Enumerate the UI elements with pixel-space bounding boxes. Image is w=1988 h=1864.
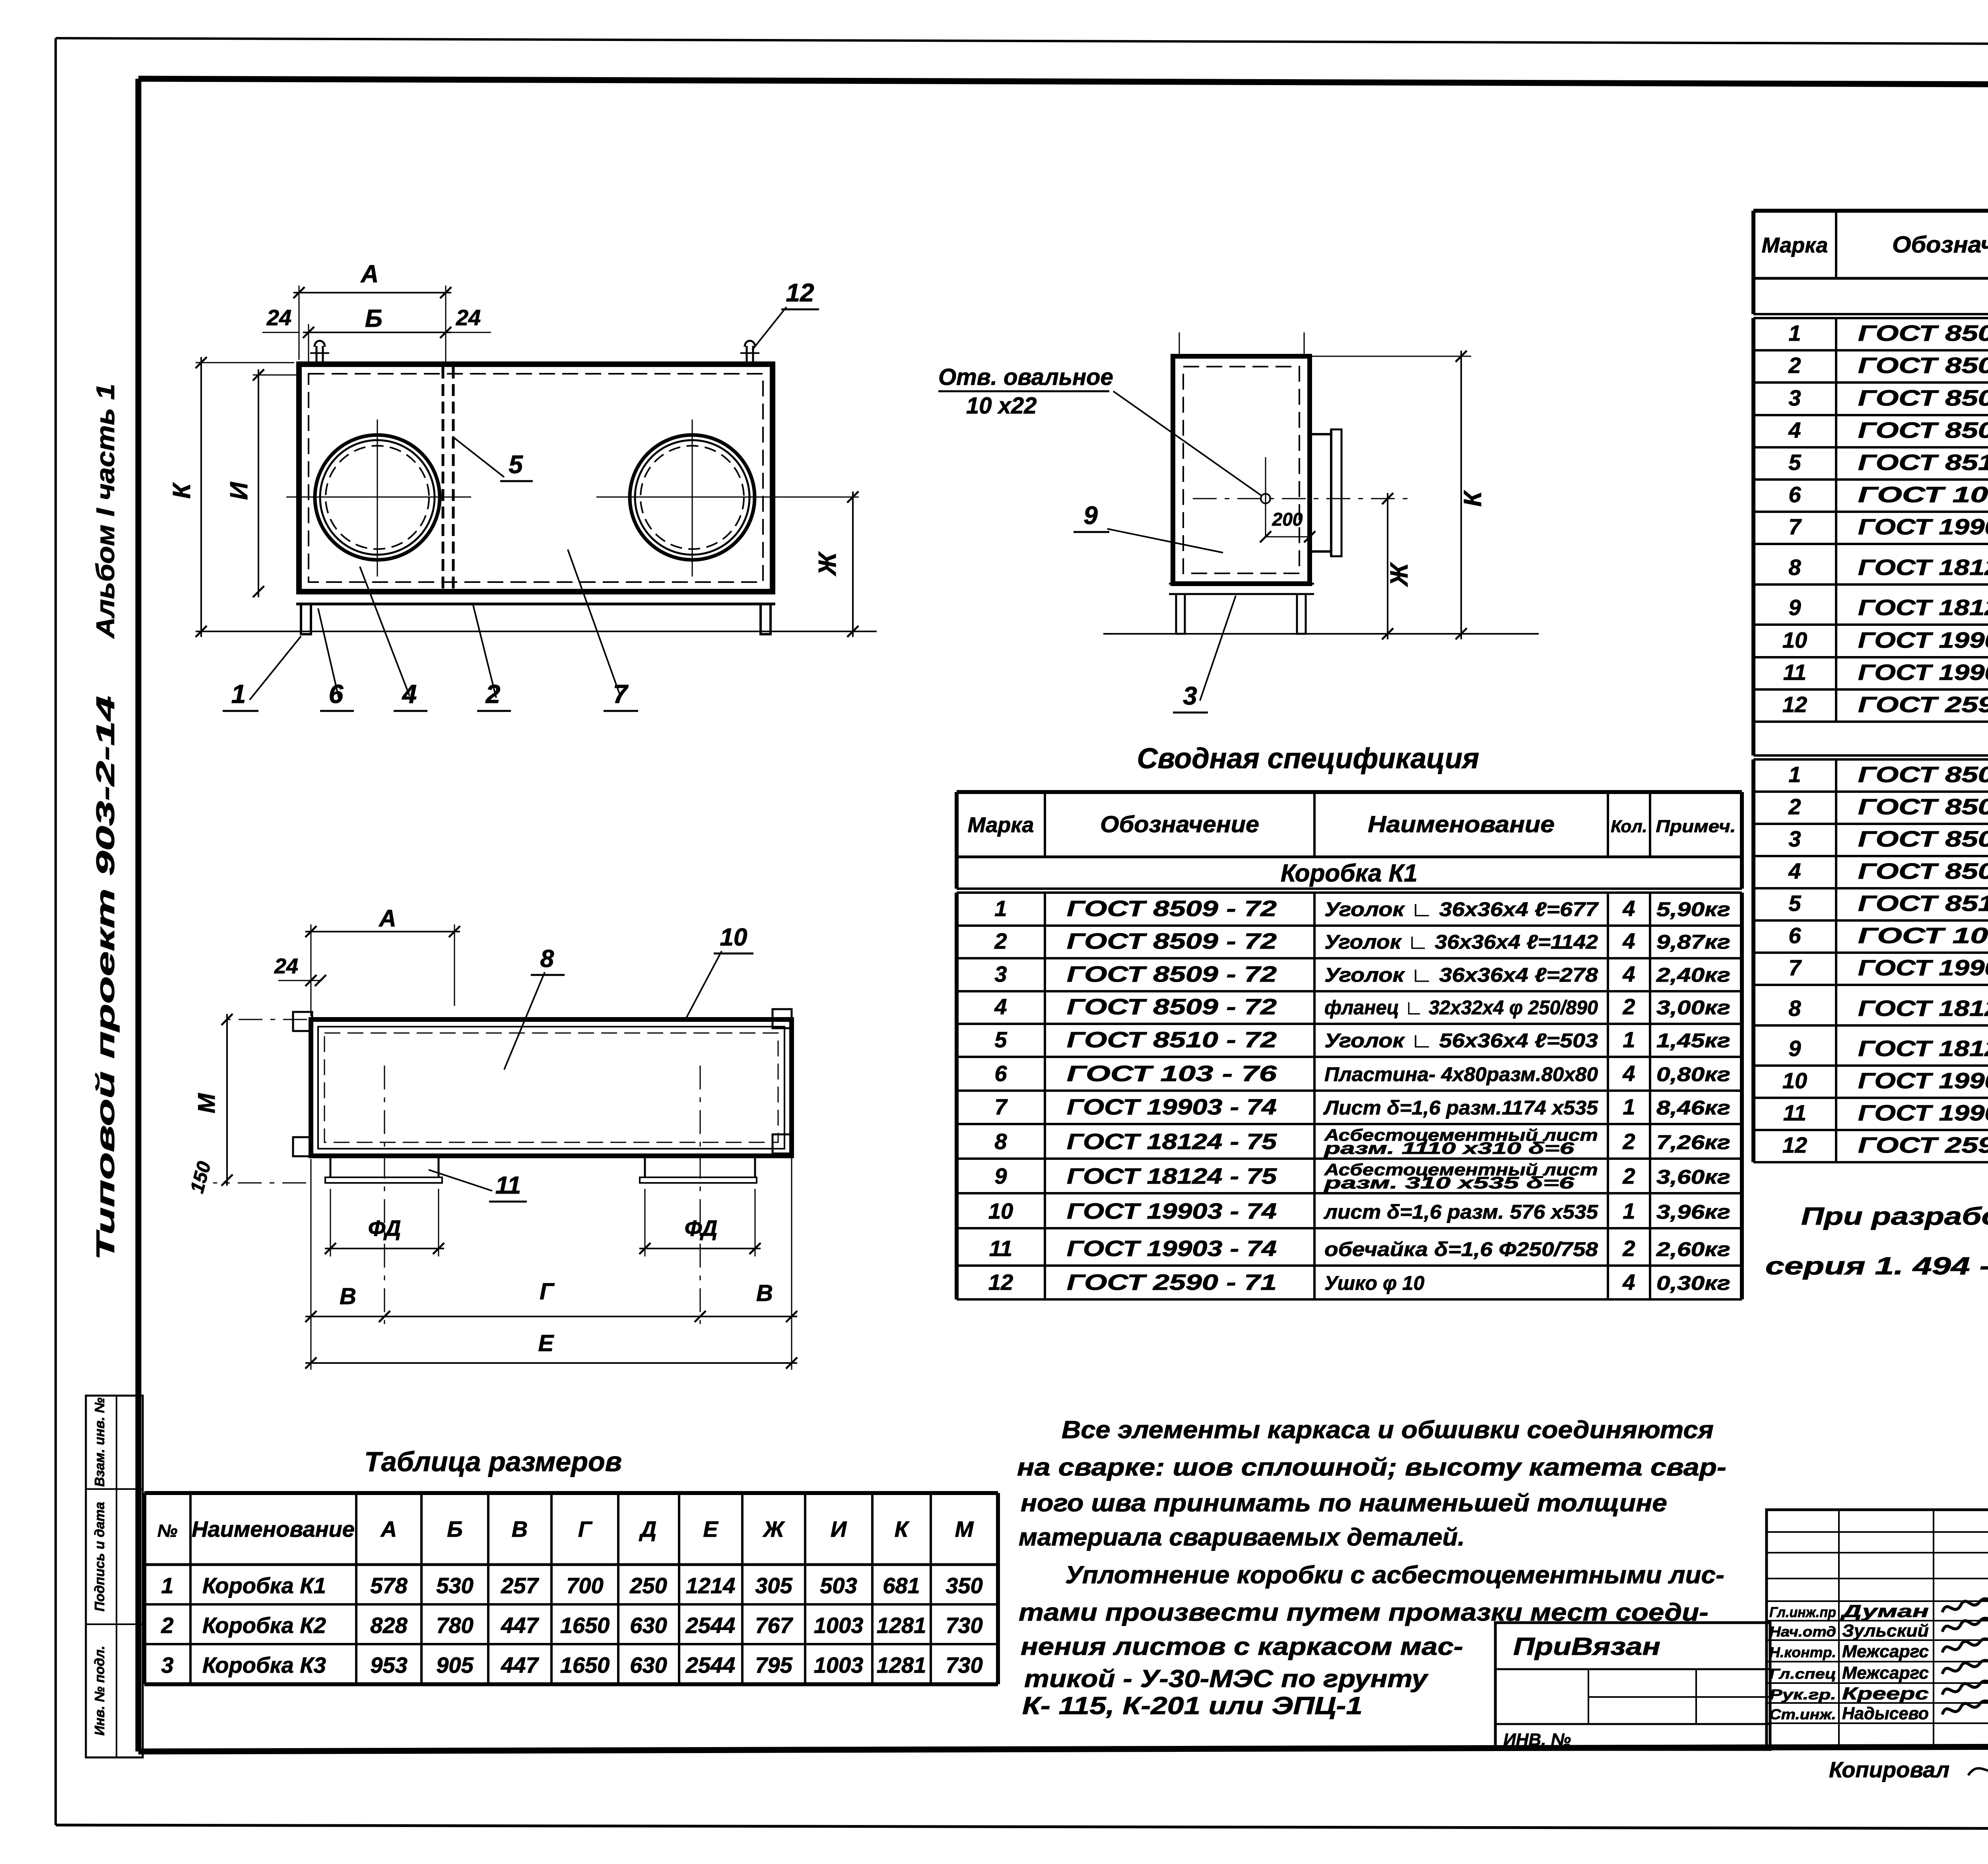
svg-text:6: 6 <box>1788 923 1801 948</box>
svg-text:Уголок ∟ 56х36х4 ℓ=503: Уголок ∟ 56х36х4 ℓ=503 <box>1324 1029 1598 1052</box>
svg-text:ГОСТ 103 - 76: ГОСТ 103 - 76 <box>1067 1061 1277 1086</box>
svg-text:ФД: ФД <box>368 1215 401 1241</box>
svg-text:Гл.инж.пр: Гл.инж.пр <box>1769 1604 1836 1620</box>
svg-text:503: 503 <box>820 1573 857 1598</box>
svg-text:578: 578 <box>370 1573 408 1598</box>
svg-text:905: 905 <box>436 1652 474 1678</box>
svg-text:1: 1 <box>994 896 1007 921</box>
svg-text:24: 24 <box>274 954 298 978</box>
svg-text:Кол.: Кол. <box>1611 817 1647 836</box>
svg-text:серия 1. 494 -26. выпуск 1: серия 1. 494 -26. выпуск 1 <box>1765 1252 1988 1280</box>
svg-text:1214: 1214 <box>686 1573 736 1598</box>
svg-text:828: 828 <box>370 1613 408 1638</box>
svg-text:ГОСТ 18124 - 75: ГОСТ 18124 - 75 <box>1858 555 1988 580</box>
svg-text:Альбом I часть 1: Альбом I часть 1 <box>91 384 120 639</box>
svg-text:4: 4 <box>1622 1061 1635 1086</box>
svg-text:Подпись и дата: Подпись и дата <box>92 1502 107 1612</box>
svg-text:К: К <box>1459 490 1487 507</box>
svg-text:А: А <box>378 905 396 932</box>
svg-text:И: И <box>225 482 253 500</box>
svg-text:250: 250 <box>629 1573 667 1598</box>
svg-text:ПриВязан: ПриВязан <box>1513 1633 1660 1660</box>
svg-text:3: 3 <box>1183 682 1197 710</box>
svg-text:4: 4 <box>994 994 1007 1019</box>
svg-text:И: И <box>831 1516 847 1542</box>
svg-text:7,26кг: 7,26кг <box>1656 1131 1730 1153</box>
svg-text:9,87кг: 9,87кг <box>1656 931 1730 953</box>
svg-text:200: 200 <box>1272 509 1303 530</box>
svg-text:№: № <box>157 1521 177 1541</box>
svg-text:10: 10 <box>1782 627 1807 652</box>
svg-text:681: 681 <box>883 1573 920 1598</box>
svg-text:лист δ=1,6 разм. 576 х535: лист δ=1,6 разм. 576 х535 <box>1324 1201 1598 1223</box>
svg-text:В: В <box>512 1516 528 1542</box>
svg-text:7: 7 <box>1788 955 1802 980</box>
svg-text:Креерс: Креерс <box>1842 1684 1929 1703</box>
svg-text:3: 3 <box>1788 826 1801 851</box>
svg-text:К- 115, К-201 или ЭПЦ-1: К- 115, К-201 или ЭПЦ-1 <box>1022 1692 1363 1720</box>
svg-text:Уплотнение коробки с асбест: Уплотнение коробки с асбестоцементными л… <box>1065 1561 1724 1589</box>
svg-text:8: 8 <box>1788 555 1801 580</box>
svg-text:2: 2 <box>1622 1163 1635 1188</box>
svg-text:Инв. № подл.: Инв. № подл. <box>92 1646 107 1736</box>
svg-text:24: 24 <box>456 305 481 330</box>
svg-text:ГОСТ 8509 - 72: ГОСТ 8509 - 72 <box>1858 417 1988 443</box>
svg-text:257: 257 <box>501 1573 539 1598</box>
svg-text:4: 4 <box>1622 928 1635 953</box>
svg-text:2544: 2544 <box>685 1652 736 1678</box>
svg-text:Ушко φ 10: Ушко φ 10 <box>1324 1272 1425 1294</box>
svg-text:1,45кг: 1,45кг <box>1656 1029 1730 1052</box>
svg-text:Все элементы каркаса и обш: Все элементы каркаса и обшивки соединяют… <box>1062 1416 1714 1444</box>
svg-text:Зульский: Зульский <box>1842 1621 1929 1641</box>
svg-text:Уголок ∟ 36х36х4 ℓ=677: Уголок ∟ 36х36х4 ℓ=677 <box>1324 898 1599 920</box>
svg-text:Н.контр.: Н.контр. <box>1769 1644 1836 1660</box>
svg-text:Гл.спец: Гл.спец <box>1769 1666 1836 1682</box>
svg-text:2: 2 <box>1788 353 1801 378</box>
svg-text:1281: 1281 <box>877 1613 926 1638</box>
svg-text:12: 12 <box>988 1270 1013 1295</box>
svg-text:ГОСТ 8509 - 72: ГОСТ 8509 - 72 <box>1858 320 1988 346</box>
svg-text:ГОСТ 18124 - 75: ГОСТ 18124 - 75 <box>1858 1036 1988 1061</box>
svg-text:447: 447 <box>501 1652 539 1678</box>
svg-text:Ж: Ж <box>814 551 841 577</box>
svg-text:630: 630 <box>630 1613 667 1638</box>
svg-text:Межсаргс: Межсаргс <box>1842 1642 1929 1661</box>
svg-text:2: 2 <box>1622 1236 1635 1261</box>
svg-text:11: 11 <box>1783 660 1806 685</box>
svg-text:разм. 1110 х310 δ=6: разм. 1110 х310 δ=6 <box>1324 1139 1574 1157</box>
svg-text:7: 7 <box>994 1094 1008 1119</box>
svg-text:1003: 1003 <box>814 1652 864 1678</box>
svg-text:730: 730 <box>945 1613 982 1638</box>
svg-text:ГОСТ 8509 - 72: ГОСТ 8509 - 72 <box>1067 961 1277 986</box>
svg-text:2,40кг: 2,40кг <box>1656 964 1730 986</box>
svg-text:5: 5 <box>1788 450 1801 475</box>
svg-text:8: 8 <box>994 1129 1007 1154</box>
svg-text:ГОСТ 8509 - 72: ГОСТ 8509 - 72 <box>1067 928 1277 953</box>
svg-text:767: 767 <box>755 1613 793 1638</box>
svg-text:ГОСТ 19903 - 74: ГОСТ 19903 - 74 <box>1858 514 1988 539</box>
svg-text:1: 1 <box>1788 762 1801 787</box>
svg-text:10: 10 <box>1782 1068 1807 1093</box>
svg-text:ГОСТ 8509 - 72: ГОСТ 8509 - 72 <box>1858 353 1988 378</box>
svg-text:ГОСТ 19903 - 74: ГОСТ 19903 - 74 <box>1067 1198 1277 1223</box>
svg-text:Копировал: Копировал <box>1829 1757 1949 1782</box>
svg-text:Б: Б <box>447 1516 463 1542</box>
svg-text:2: 2 <box>1622 994 1635 1019</box>
svg-text:1281: 1281 <box>877 1652 926 1678</box>
svg-text:Д: Д <box>639 1516 656 1542</box>
svg-text:447: 447 <box>501 1613 539 1638</box>
svg-text:Ж: Ж <box>1386 562 1413 587</box>
svg-text:1: 1 <box>161 1573 173 1598</box>
svg-text:Межсаргс: Межсаргс <box>1842 1663 1929 1683</box>
svg-text:Отв. овальное: Отв. овальное <box>938 364 1113 390</box>
svg-text:М: М <box>955 1516 974 1542</box>
svg-text:ГОСТ 18124 - 73: ГОСТ 18124 - 73 <box>1858 996 1988 1021</box>
svg-text:Типовой проект 903-2-14: Типовой проект 903-2-14 <box>91 696 120 1260</box>
svg-text:4: 4 <box>1622 1270 1635 1295</box>
svg-text:780: 780 <box>436 1613 473 1638</box>
svg-text:Взам. инв. №: Взам. инв. № <box>92 1398 107 1487</box>
svg-text:В: В <box>756 1280 773 1306</box>
svg-text:3,96кг: 3,96кг <box>1656 1201 1730 1223</box>
svg-text:ГОСТ 19903 - 74: ГОСТ 19903 - 74 <box>1858 1068 1988 1093</box>
svg-text:А: А <box>380 1516 397 1542</box>
svg-text:ГОСТ 8509 - 72: ГОСТ 8509 - 72 <box>1067 994 1277 1019</box>
svg-text:Г: Г <box>578 1516 593 1542</box>
svg-text:350: 350 <box>945 1573 982 1598</box>
svg-text:ГОСТ 2590 - 71: ГОСТ 2590 - 71 <box>1858 1132 1988 1157</box>
svg-text:700: 700 <box>566 1573 603 1598</box>
svg-text:Обозначение: Обозначение <box>1892 232 1988 258</box>
svg-text:Марка: Марка <box>968 813 1034 837</box>
svg-text:Ж: Ж <box>762 1516 785 1542</box>
svg-text:К: К <box>895 1516 910 1542</box>
svg-text:ГОСТ 2590 - 71: ГОСТ 2590 - 71 <box>1858 692 1988 717</box>
svg-text:ГОСТ 8509 - 72: ГОСТ 8509 - 72 <box>1067 896 1277 921</box>
svg-text:1: 1 <box>1623 1198 1635 1223</box>
svg-text:К: К <box>168 482 196 499</box>
svg-text:материала свариваемых детале: материала свариваемых деталей. <box>1019 1524 1465 1551</box>
svg-text:5,90кг: 5,90кг <box>1656 898 1730 920</box>
svg-text:ГОСТ 19903 - 74: ГОСТ 19903 - 74 <box>1858 955 1988 980</box>
svg-text:Е: Е <box>703 1516 718 1542</box>
svg-text:2544: 2544 <box>685 1613 736 1638</box>
svg-text:Нач.отд: Нач.отд <box>1769 1623 1836 1640</box>
svg-text:При разработке чертежа исп: При разработке чертежа использована <box>1801 1203 1988 1230</box>
svg-text:Надысево: Надысево <box>1842 1704 1929 1723</box>
svg-text:9: 9 <box>1788 595 1801 620</box>
svg-text:ФД: ФД <box>685 1215 718 1241</box>
svg-text:Наименование: Наименование <box>1368 812 1555 837</box>
svg-text:Лист δ=1,6 разм.1174 х535: Лист δ=1,6 разм.1174 х535 <box>1323 1097 1598 1119</box>
svg-text:1: 1 <box>1623 1094 1635 1119</box>
svg-text:ГОСТ 19903 - 74: ГОСТ 19903 - 74 <box>1858 1100 1988 1125</box>
svg-text:ГОСТ 8510 - 72: ГОСТ 8510 - 72 <box>1067 1027 1277 1052</box>
svg-text:630: 630 <box>630 1652 667 1678</box>
svg-text:Уголок ∟ 36х36х4 ℓ=1142: Уголок ∟ 36х36х4 ℓ=1142 <box>1324 931 1598 953</box>
svg-text:12: 12 <box>1782 1132 1807 1157</box>
svg-text:3,00кг: 3,00кг <box>1656 996 1730 1019</box>
svg-text:Таблица размеров: Таблица размеров <box>364 1446 622 1477</box>
svg-text:530: 530 <box>436 1573 473 1598</box>
svg-text:ГОСТ 18124 - 75: ГОСТ 18124 - 75 <box>1067 1129 1277 1154</box>
svg-text:1003: 1003 <box>814 1613 864 1638</box>
svg-text:953: 953 <box>370 1652 407 1678</box>
svg-text:9: 9 <box>1788 1036 1801 1061</box>
svg-text:Наименование: Наименование <box>192 1516 355 1542</box>
svg-text:Примеч.: Примеч. <box>1656 817 1736 836</box>
svg-text:2: 2 <box>161 1613 173 1638</box>
svg-text:Коробка К1: Коробка К1 <box>1281 860 1417 887</box>
svg-text:обечайка δ=1,6 Ф250/758: обечайка δ=1,6 Ф250/758 <box>1324 1238 1598 1260</box>
svg-text:3: 3 <box>1788 385 1801 410</box>
svg-text:на сварке: шов сплошной; в: на сварке: шов сплошной; высоту катета с… <box>1017 1454 1726 1481</box>
svg-text:Пластина- 4х80разм.80х80: Пластина- 4х80разм.80х80 <box>1324 1063 1598 1085</box>
svg-text:А: А <box>360 260 379 288</box>
svg-text:ГОСТ 8510 - 72: ГОСТ 8510 - 72 <box>1858 450 1988 475</box>
svg-text:ГОСТ 19903 - 74: ГОСТ 19903 - 74 <box>1858 627 1988 652</box>
svg-text:фланец ∟ 32х32х4 φ 250/890: фланец ∟ 32х32х4 φ 250/890 <box>1324 996 1598 1019</box>
svg-text:12: 12 <box>786 278 814 307</box>
svg-text:Коробка К2: Коробка К2 <box>202 1613 326 1638</box>
svg-text:ГОСТ 8509 - 72: ГОСТ 8509 - 72 <box>1858 762 1988 787</box>
svg-text:4: 4 <box>1622 961 1635 986</box>
svg-text:Коробка К1: Коробка К1 <box>202 1573 326 1598</box>
svg-text:В: В <box>340 1283 356 1309</box>
svg-text:10: 10 <box>720 924 747 951</box>
svg-text:3: 3 <box>161 1652 173 1678</box>
svg-text:2,60кг: 2,60кг <box>1656 1238 1730 1260</box>
svg-text:10 х22: 10 х22 <box>966 393 1037 419</box>
svg-text:ГОСТ 19903 - 74: ГОСТ 19903 - 74 <box>1067 1094 1277 1119</box>
svg-text:Коробка К3: Коробка К3 <box>202 1652 326 1678</box>
svg-text:Марка: Марка <box>1762 233 1828 257</box>
svg-text:Уголок ∟ 36х36х4 ℓ=278: Уголок ∟ 36х36х4 ℓ=278 <box>1324 964 1598 986</box>
svg-text:1: 1 <box>1788 320 1801 346</box>
svg-text:Обозначение: Обозначение <box>1100 812 1259 837</box>
svg-text:тикой - У-30-МЭС по грунту: тикой - У-30-МЭС по грунту <box>1024 1665 1429 1693</box>
svg-text:5: 5 <box>994 1027 1007 1052</box>
svg-text:4: 4 <box>1788 417 1801 443</box>
svg-text:795: 795 <box>755 1652 792 1678</box>
svg-text:Е: Е <box>538 1330 555 1356</box>
svg-text:Г: Г <box>540 1279 555 1305</box>
svg-text:11: 11 <box>989 1236 1012 1261</box>
svg-text:ГОСТ 8510 - 72: ГОСТ 8510 - 72 <box>1858 891 1988 916</box>
svg-text:5: 5 <box>1788 891 1801 916</box>
svg-text:ГОСТ 103 - 76: ГОСТ 103 - 76 <box>1858 923 1988 948</box>
svg-text:0,30кг: 0,30кг <box>1656 1272 1730 1294</box>
svg-text:1650: 1650 <box>560 1613 610 1638</box>
svg-text:2: 2 <box>1622 1129 1635 1154</box>
svg-text:ИНВ. №: ИНВ. № <box>1503 1730 1571 1749</box>
svg-text:9: 9 <box>1083 501 1098 530</box>
svg-text:разм. 310 х535 δ=6: разм. 310 х535 δ=6 <box>1324 1173 1574 1192</box>
svg-text:4: 4 <box>1788 858 1801 883</box>
svg-text:ГОСТ 19903 - 74: ГОСТ 19903 - 74 <box>1858 660 1988 685</box>
svg-text:ГОСТ 8509 - 72: ГОСТ 8509 - 72 <box>1858 858 1988 883</box>
svg-text:11: 11 <box>495 1172 521 1199</box>
svg-text:ГОСТ 18124 - 75: ГОСТ 18124 - 75 <box>1067 1163 1277 1188</box>
svg-text:ГОСТ 8509 - 72: ГОСТ 8509 - 72 <box>1858 794 1988 819</box>
svg-text:Думан: Думан <box>1840 1602 1929 1621</box>
svg-text:5: 5 <box>509 450 523 479</box>
svg-text:ГОСТ 8509 - 72: ГОСТ 8509 - 72 <box>1858 826 1988 851</box>
svg-text:1: 1 <box>1623 1027 1635 1052</box>
svg-text:Б: Б <box>365 305 382 332</box>
svg-text:12: 12 <box>1782 692 1807 717</box>
svg-text:ГОСТ 19903 - 74: ГОСТ 19903 - 74 <box>1067 1236 1277 1261</box>
svg-text:6: 6 <box>994 1061 1007 1086</box>
svg-text:0,80кг: 0,80кг <box>1656 1063 1730 1085</box>
svg-text:1650: 1650 <box>560 1652 610 1678</box>
svg-text:нения листов с каркасом ма: нения листов с каркасом мас- <box>1021 1633 1463 1660</box>
svg-text:ГОСТ 2590 - 71: ГОСТ 2590 - 71 <box>1067 1270 1277 1295</box>
svg-text:Ст.инж.: Ст.инж. <box>1769 1706 1836 1722</box>
svg-text:2: 2 <box>994 928 1007 953</box>
svg-text:8: 8 <box>540 945 554 973</box>
svg-text:3: 3 <box>994 961 1007 986</box>
svg-text:ного шва принимать по наим: ного шва принимать по наименьшей толщине <box>1021 1489 1667 1517</box>
svg-text:М: М <box>193 1093 220 1113</box>
svg-text:7: 7 <box>1788 514 1802 539</box>
svg-text:730: 730 <box>945 1652 982 1678</box>
svg-text:9: 9 <box>994 1163 1007 1188</box>
svg-text:6: 6 <box>1788 482 1801 507</box>
svg-text:Рук.гр.: Рук.гр. <box>1769 1686 1836 1703</box>
svg-text:10: 10 <box>988 1198 1013 1223</box>
svg-text:305: 305 <box>755 1573 792 1598</box>
svg-text:Сводная спецификация: Сводная спецификация <box>1137 743 1479 775</box>
svg-text:11: 11 <box>1783 1100 1806 1125</box>
svg-text:ГОСТ 8509 - 72: ГОСТ 8509 - 72 <box>1858 385 1988 410</box>
svg-text:ГОСТ 103 - 76: ГОСТ 103 - 76 <box>1858 482 1988 507</box>
svg-text:4: 4 <box>1622 896 1635 921</box>
svg-text:8,46кг: 8,46кг <box>1656 1097 1730 1119</box>
svg-text:1: 1 <box>231 679 246 709</box>
svg-text:3,60кг: 3,60кг <box>1656 1166 1730 1188</box>
svg-text:8: 8 <box>1788 996 1801 1021</box>
svg-text:24: 24 <box>266 305 291 330</box>
svg-text:ГОСТ 18124 - 75: ГОСТ 18124 - 75 <box>1858 595 1988 620</box>
svg-text:2: 2 <box>1788 794 1801 819</box>
